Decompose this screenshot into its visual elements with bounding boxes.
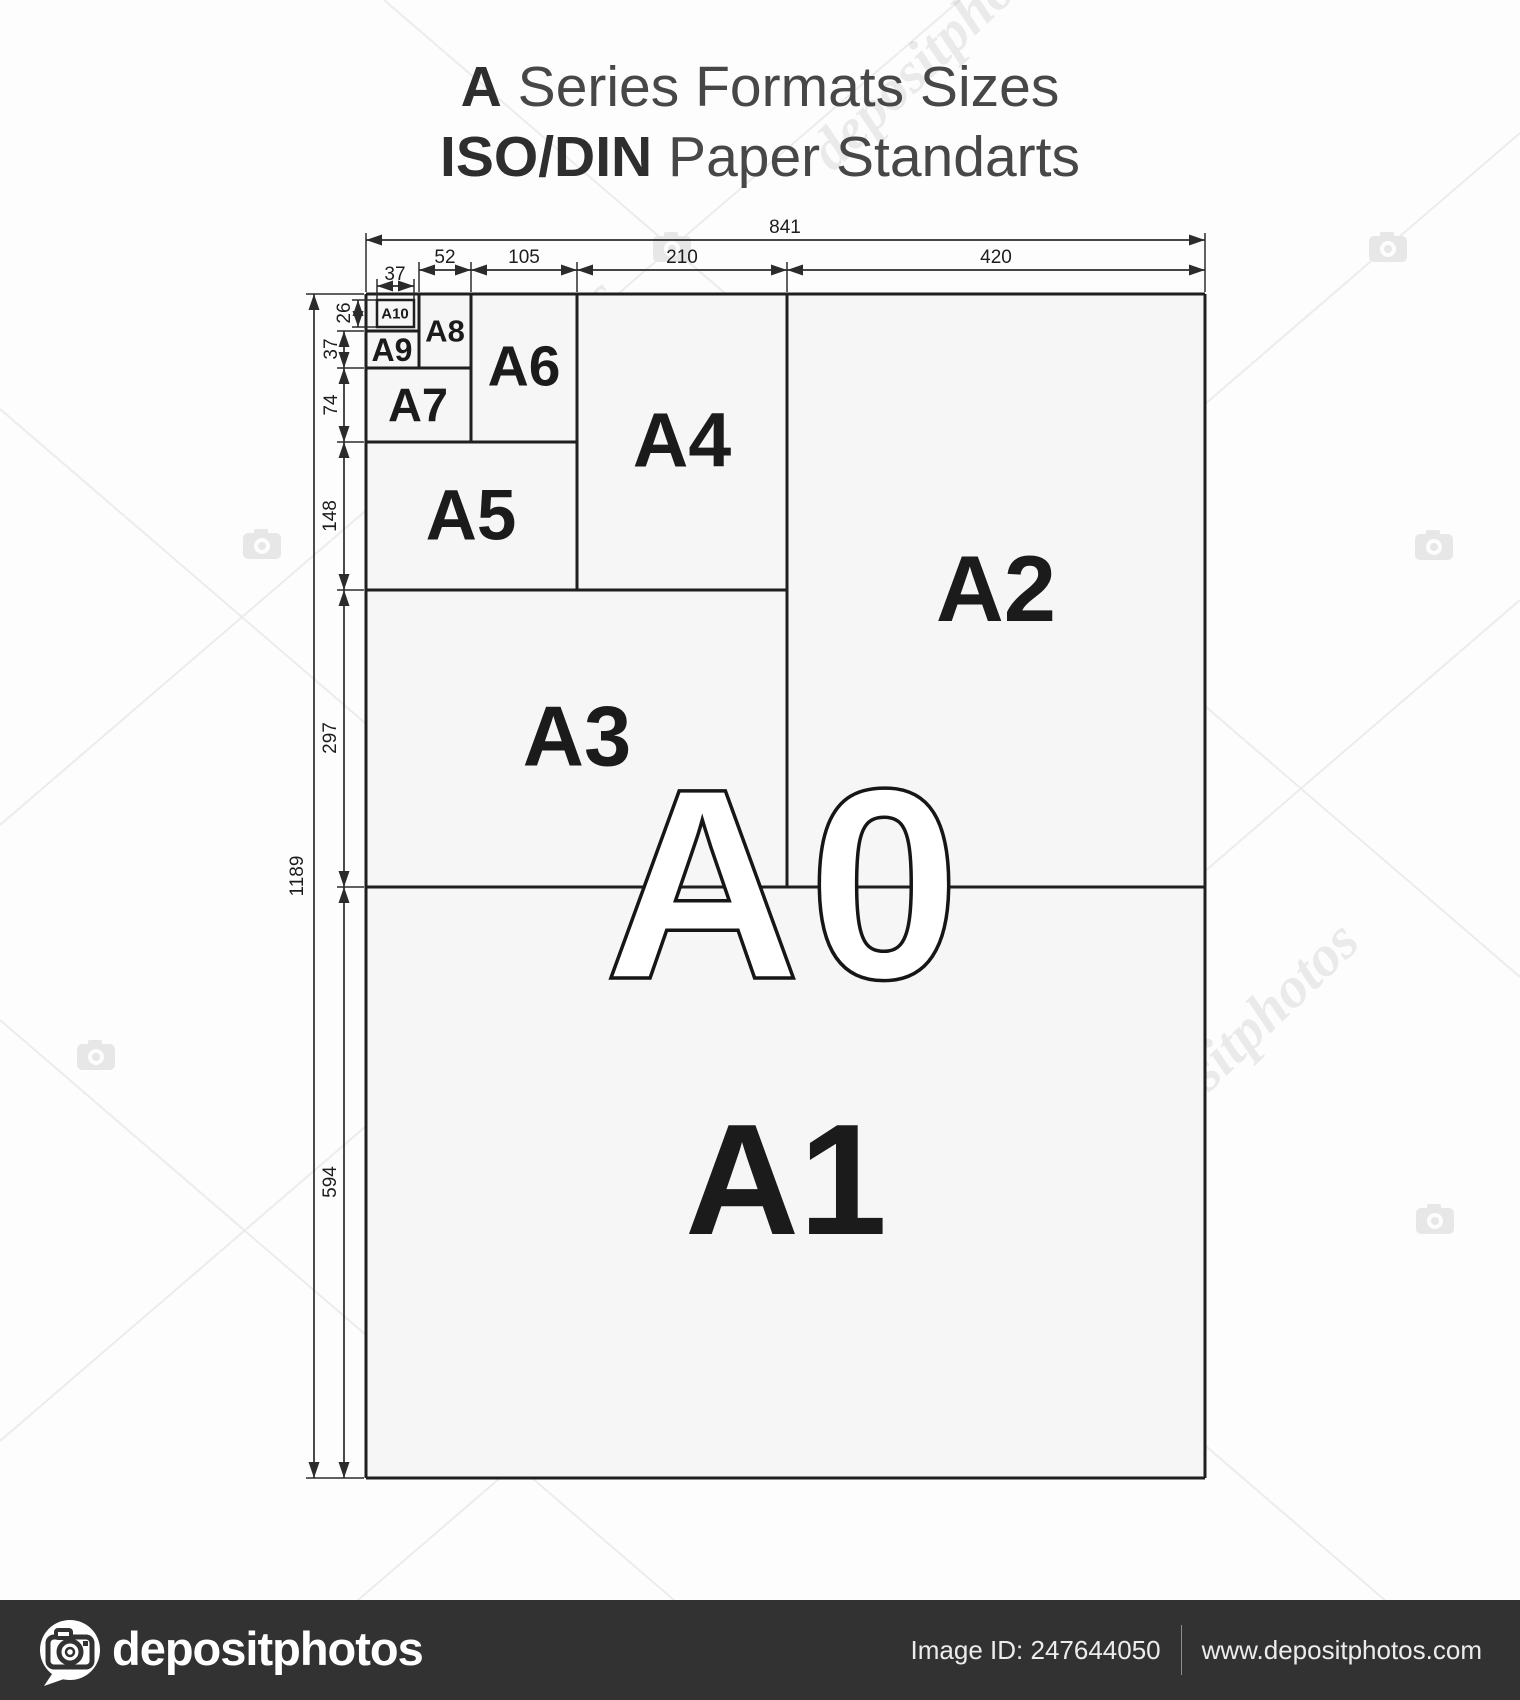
format-label-a4: A4 — [633, 403, 731, 480]
format-label-a1: A1 — [685, 1101, 887, 1259]
dim-label-a10-height: 26 — [334, 302, 355, 323]
title-line-1: A Series Formats Sizes — [0, 52, 1520, 122]
title-line-1-bold: A — [461, 55, 502, 119]
image-id-text: Image ID: 247644050 — [911, 1635, 1161, 1666]
dim-label-a3-height: 297 — [320, 722, 341, 754]
title-line-2-rest: Paper Standarts — [652, 125, 1080, 189]
title-line-1-rest: Series Formats Sizes — [502, 55, 1059, 119]
dim-label-a9-height: 37 — [321, 338, 342, 359]
format-label-a3: A3 — [523, 695, 632, 780]
format-label-a2: A2 — [936, 542, 1056, 636]
title-line-2: ISO/DIN Paper Standarts — [0, 122, 1520, 192]
title-line-2-bold: ISO/DIN — [440, 125, 652, 189]
dim-label-a5-height: 148 — [320, 500, 341, 532]
format-label-a10: A10 — [381, 307, 409, 322]
footer-divider — [1181, 1625, 1182, 1675]
format-label-a8: A8 — [425, 316, 465, 347]
website-text: www.depositphotos.com — [1202, 1635, 1482, 1666]
dim-label-a2-width: 420 — [980, 247, 1012, 268]
format-label-a9: A9 — [372, 334, 413, 366]
format-label-a7: A7 — [388, 382, 448, 429]
dim-label-a6-width: 105 — [508, 247, 540, 268]
paper-sizes-diagram: 841 52 105 210 420 37 1189 26 37 74 148 … — [0, 0, 1520, 1700]
page-title: A Series Formats Sizes ISO/DIN Paper Sta… — [0, 52, 1520, 192]
dim-label-a10-width: 37 — [384, 264, 405, 285]
dim-label-a8-width: 52 — [434, 247, 455, 268]
format-label-a6: A6 — [488, 339, 561, 396]
format-label-a0: A0 — [604, 732, 968, 1036]
depositphotos-wordmark: depositphotos — [112, 1621, 423, 1676]
dim-label-a4-width: 210 — [666, 247, 698, 268]
footer-info: Image ID: 247644050 www.depositphotos.co… — [911, 1600, 1482, 1700]
dim-label-total-height: 1189 — [287, 856, 308, 897]
dim-label-a1-height: 594 — [320, 1166, 341, 1198]
dim-label-total-width: 841 — [769, 217, 801, 238]
format-label-a5: A5 — [426, 481, 517, 552]
dim-label-a7-height: 74 — [321, 394, 342, 416]
